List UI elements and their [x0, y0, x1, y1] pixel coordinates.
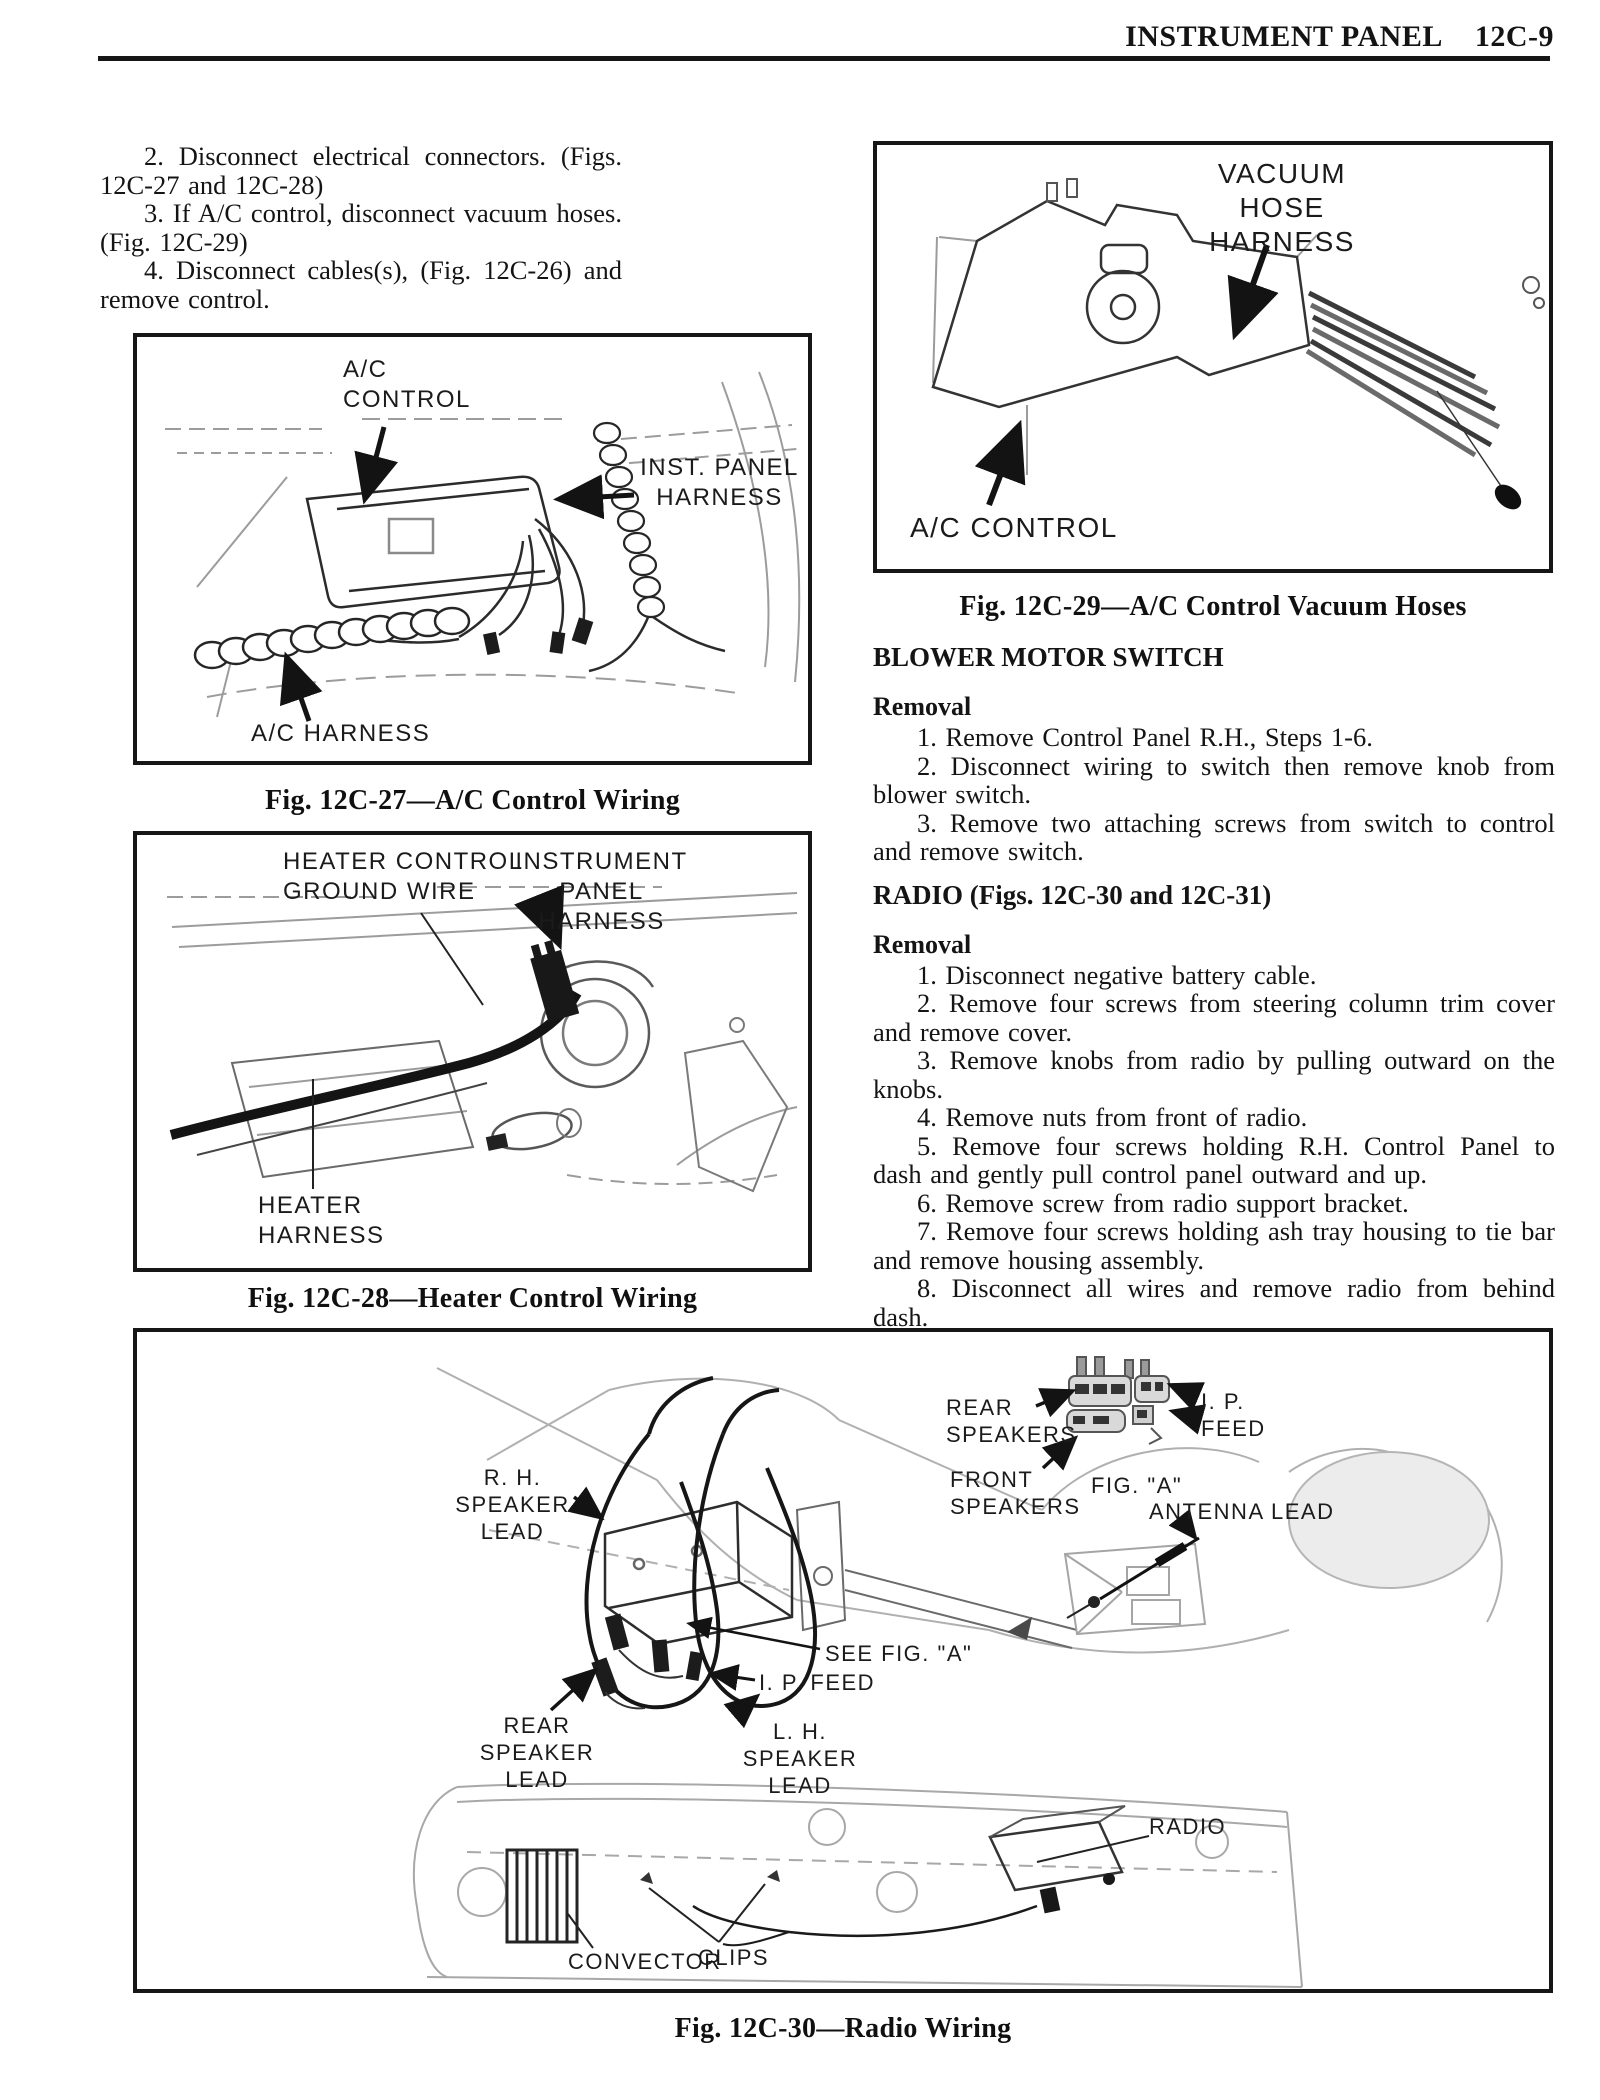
fig27-label-ac-control: A/C CONTROL — [343, 355, 471, 415]
fig30-label-antenna-lead: ANTENNA LEAD — [1149, 1498, 1335, 1525]
figure-12c30: REAR SPEAKERS I. P. FEED FRONT SPEAKERS … — [133, 1328, 1553, 1993]
fig30-label-fig-a: FIG. "A" — [1091, 1472, 1182, 1499]
fig30-label-rh-speaker-lead: R. H. SPEAKER LEAD — [440, 1464, 585, 1545]
figure-12c29-caption: Fig. 12C-29—A/C Control Vacuum Hoses — [873, 590, 1553, 623]
radio-removal-subheading: Removal — [873, 930, 1555, 959]
fig30-label-front-speakers: FRONT SPEAKERS — [950, 1466, 1081, 1520]
radio-step-1: 1. Disconnect negative battery cable. — [873, 961, 1555, 990]
radio-step-8: 8. Disconnect all wires and remove radio… — [873, 1274, 1555, 1331]
blower-step-2: 2. Disconnect wiring to switch then remo… — [873, 752, 1555, 809]
fig30-label-rear-speaker-lead: REAR SPEAKER LEAD — [467, 1712, 607, 1793]
blower-step-1: 1. Remove Control Panel R.H., Steps 1-6. — [873, 723, 1555, 752]
radio-step-2: 2. Remove four screws from steering colu… — [873, 989, 1555, 1046]
blower-removal-subheading: Removal — [873, 692, 1555, 721]
figure-12c27-caption: Fig. 12C-27—A/C Control Wiring — [133, 784, 812, 817]
intro-steps: 2. Disconnect electrical connectors. (Fi… — [100, 142, 622, 313]
fig28-label-heater-harness: HEATER HARNESS — [258, 1191, 385, 1251]
fig29-label-vacuum-hose-harness: VACUUM HOSE HARNESS — [1182, 157, 1382, 259]
fig30-label-ip-feed: I. P. FEED — [759, 1669, 875, 1696]
radio-step-6: 6. Remove screw from radio support brack… — [873, 1189, 1555, 1218]
right-column: BLOWER MOTOR SWITCH Removal 1. Remove Co… — [873, 642, 1555, 1331]
intro-step-4: 4. Disconnect cables(s), (Fig. 12C-26) a… — [100, 256, 622, 313]
blower-step-3: 3. Remove two attaching screws from swit… — [873, 809, 1555, 866]
intro-step-2: 2. Disconnect electrical connectors. (Fi… — [100, 142, 622, 199]
fig30-label-ip-feed-top: I. P. FEED — [1201, 1388, 1266, 1442]
header-title: INSTRUMENT PANEL — [1125, 20, 1443, 53]
fig30-label-radio: RADIO — [1149, 1813, 1226, 1840]
fig30-label-see-fig-a: SEE FIG. "A" — [825, 1640, 972, 1667]
fig30-label-lh-speaker-lead: L. H. SPEAKER LEAD — [733, 1718, 867, 1799]
radio-step-7: 7. Remove four screws holding ash tray h… — [873, 1217, 1555, 1274]
fig29-label-ac-control: A/C CONTROL — [910, 511, 1118, 545]
figure-12c27: A/C CONTROL INST. PANEL HARNESS A/C HARN… — [133, 333, 812, 765]
radio-step-3: 3. Remove knobs from radio by pulling ou… — [873, 1046, 1555, 1103]
fig30-label-rear-speakers: REAR SPEAKERS — [946, 1394, 1077, 1448]
fig28-label-heater-control-ground-wire: HEATER CONTROL GROUND WIRE — [283, 847, 524, 907]
radio-step-4: 4. Remove nuts from front of radio. — [873, 1103, 1555, 1132]
page-header: INSTRUMENT PANEL12C-9 — [1125, 20, 1554, 54]
figure-12c27-drawing — [137, 337, 808, 761]
figure-12c28-caption: Fig. 12C-28—Heater Control Wiring — [133, 1282, 812, 1315]
fig27-label-inst-panel-harness: INST. PANEL HARNESS — [637, 453, 802, 513]
header-rule — [98, 56, 1550, 61]
blower-motor-switch-heading: BLOWER MOTOR SWITCH — [873, 642, 1555, 672]
figure-12c30-caption: Fig. 12C-30—Radio Wiring — [133, 2012, 1553, 2045]
fig28-label-instrument-panel-harness: INSTRUMENT PANEL HARNESS — [509, 847, 694, 937]
manual-page: INSTRUMENT PANEL12C-9 2. Disconnect elec… — [0, 0, 1600, 2100]
figure-12c28: HEATER CONTROL GROUND WIRE INSTRUMENT PA… — [133, 831, 812, 1272]
fig30-label-clips: CLIPS — [698, 1944, 769, 1971]
radio-step-5: 5. Remove four screws holding R.H. Contr… — [873, 1132, 1555, 1189]
intro-step-3: 3. If A/C control, disconnect vacuum hos… — [100, 199, 622, 256]
radio-heading: RADIO (Figs. 12C-30 and 12C-31) — [873, 880, 1555, 910]
figure-12c29: VACUUM HOSE HARNESS A/C CONTROL — [873, 141, 1553, 573]
header-page-number: 12C-9 — [1475, 20, 1554, 53]
fig27-label-ac-harness: A/C HARNESS — [251, 719, 430, 749]
